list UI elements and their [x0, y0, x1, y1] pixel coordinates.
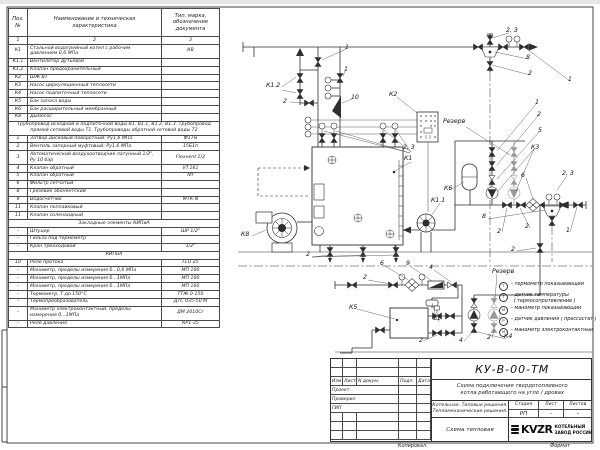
- empty-cell: [331, 359, 343, 368]
- cell-pos: 6: [9, 180, 28, 188]
- empty-cell: [399, 404, 417, 413]
- cell-type: 15Б1п: [162, 143, 220, 151]
- cell-pos: –: [9, 228, 28, 236]
- cell-name: Клапан поплавковый: [28, 204, 162, 212]
- cell-pos: К6: [9, 106, 28, 114]
- revision-table: ИзмЛистN докум.Подп.ДатаПроект.ПроверилГ…: [331, 359, 432, 441]
- revision-header-cell: Лист: [343, 377, 357, 386]
- empty-cell: [343, 413, 357, 422]
- diagram-label: К6: [444, 185, 452, 192]
- empty-cell: [399, 413, 417, 422]
- cell-type: Ф17м: [162, 135, 220, 143]
- diagram-label: 8: [526, 54, 530, 61]
- cell-name: Клапан обратный: [28, 165, 162, 173]
- diagram-label: 2, 3: [403, 144, 415, 151]
- cell-pos: 9: [9, 196, 28, 204]
- stage-grid: Стадия Лист Листов РП - -: [509, 401, 592, 418]
- cell-pos: –: [9, 291, 28, 299]
- legend-text: – датчик давления ( прессостат ): [511, 317, 597, 323]
- empty-cell: [357, 413, 399, 422]
- empty-cell: [417, 395, 431, 404]
- legend-text: – манометр показывающий: [511, 306, 582, 312]
- legend-item: Т– термометр показывающий: [499, 282, 597, 291]
- cell-pos: К4: [9, 90, 28, 98]
- table-row: –Термометр, Т до 150°СТТЖ 0-150: [9, 291, 220, 299]
- sheet-value: -: [539, 410, 564, 419]
- cell-name: Вентилятор дутьевой: [28, 58, 162, 66]
- table-row: К1.1Вентилятор дутьевой: [9, 58, 220, 66]
- empty-cell: [417, 359, 431, 368]
- logo-waves-icon: [511, 425, 519, 434]
- empty-cell: [399, 386, 417, 395]
- empty-cell: [331, 368, 343, 377]
- diagram-label: К3: [531, 144, 539, 151]
- cell-pos: 11: [9, 204, 28, 212]
- empty-cell: [343, 431, 357, 440]
- table-row: Закладные элементы КИПиА: [9, 220, 220, 228]
- water-meter: [428, 281, 444, 289]
- legend-item: Т– датчик температуры ( термосопротивлен…: [499, 293, 597, 305]
- instrument-symbol-icon: Р: [499, 317, 508, 326]
- empty-cell: [399, 431, 417, 440]
- cell-type: [162, 98, 220, 106]
- cell-pos: –: [9, 306, 28, 320]
- table-row: К5Бак запаса воды: [9, 98, 220, 106]
- diagram-label: 2: [511, 246, 515, 253]
- legend-text: – термометр показывающий: [511, 282, 584, 288]
- expansion-tank-k6: [462, 164, 477, 190]
- diagram-label: 2, 3: [506, 27, 518, 34]
- cell-type: VT.161: [162, 165, 220, 173]
- cell-type: МП 160: [162, 283, 220, 291]
- table-row: 1Затвор дисковый поворотный: Ру1,6 МПаФ1…: [9, 135, 220, 143]
- cell-type: КР1-35: [162, 320, 220, 328]
- cell-pos: 11: [9, 212, 28, 220]
- table-row: –Манометр, пределы измерения 0...1МПаМП …: [9, 283, 220, 291]
- legend-item: М– манометр электроконтактный: [499, 328, 597, 337]
- cell-pos: –: [9, 320, 28, 328]
- diagram-label: 8: [482, 213, 486, 220]
- cell-type: [162, 204, 220, 212]
- table-row: –Манометр электроконтактный, пределы изм…: [9, 306, 220, 320]
- title-block: ИзмЛистN докум.Подп.ДатаПроект.ПроверилГ…: [330, 358, 592, 442]
- cell-type: КВ: [162, 45, 220, 59]
- diagram-label: 2, 3: [562, 170, 574, 177]
- cell-pos: –: [9, 275, 28, 283]
- cell-name: Клапан обратный: [28, 172, 162, 180]
- diagram-label: 2: [419, 337, 423, 344]
- cell-type: МТК-N: [162, 196, 220, 204]
- role-cell: ГИП: [331, 404, 399, 413]
- diagram-label: 1: [344, 66, 348, 73]
- cell-pos: К5: [9, 98, 28, 106]
- cell-name: Автоматический воздухоотводчик латунный …: [28, 151, 162, 165]
- cell-name: ШЖ ВТ: [28, 74, 162, 82]
- cell-type: NY: [162, 172, 220, 180]
- cell-name: 2: [28, 37, 162, 45]
- table-row: –Гильза под термометр: [9, 235, 220, 243]
- instrument-symbol-icon: Т: [499, 293, 508, 302]
- diagram-label: 2: [283, 98, 287, 105]
- cell-type: [162, 212, 220, 220]
- scheme-description: Схема подключения твердотопливного котла…: [432, 380, 592, 401]
- cell-pos: –: [9, 283, 28, 291]
- cell-type: [162, 82, 220, 90]
- revision-header-cell: Изм: [331, 377, 343, 386]
- role-cell: Проект.: [331, 386, 399, 395]
- cell-pos: К8: [9, 113, 28, 121]
- table-row: К6Бак расширительный мембранный: [9, 106, 220, 114]
- cell-name: Кран трехходовой: [28, 243, 162, 251]
- empty-cell: [417, 368, 431, 377]
- copied-label: Копировал.: [398, 443, 428, 449]
- instrument-symbol-icon: М: [499, 328, 508, 337]
- cell-type: [162, 235, 220, 243]
- col-name-header: Наименование и техническая характеристик…: [28, 9, 162, 37]
- stage-label: Стадия: [509, 401, 539, 410]
- drawing-type: Схема тепловая: [432, 418, 508, 441]
- cell-pos: –: [9, 298, 28, 306]
- cell-name: Гильза под термометр: [28, 235, 162, 243]
- cell-type: [162, 58, 220, 66]
- sheet-label: Лист: [539, 401, 564, 410]
- pumps-k3: [486, 148, 520, 200]
- diagram-label: 10: [351, 94, 359, 101]
- diagram-label: К8: [241, 231, 249, 238]
- sheets-label: Листов: [564, 401, 592, 410]
- revision-header-cell: Подп.: [399, 377, 417, 386]
- cell-type: ДМ 2010Сг: [162, 306, 220, 320]
- cell-name: Манометр, пределы измерения 0...1МПа: [28, 283, 162, 291]
- table-row: –Манометр, пределы измерения 0...0,6 МПа…: [9, 267, 220, 275]
- cell-pos: 10: [9, 259, 28, 267]
- cell-name: Водосчетчик: [28, 196, 162, 204]
- cell-type: ДТС 035-50 М: [162, 298, 220, 306]
- cell-name: Клапан предохранительный: [28, 66, 162, 74]
- sheets-value: -: [564, 410, 592, 419]
- empty-cell: [357, 431, 399, 440]
- table-row: –ШтуцерШР 1/2": [9, 228, 220, 236]
- format-label: Формат: [550, 443, 570, 449]
- table-row: К1.2Клапан предохранительный: [9, 66, 220, 74]
- table-row: –Манометр, пределы измерения 0...1МПаМП …: [9, 275, 220, 283]
- cell-type: МП 100: [162, 275, 220, 283]
- empty-cell: [399, 395, 417, 404]
- storage-tank-k5: [390, 300, 438, 338]
- table-row: 9ВодосчетчикМТК-N: [9, 196, 220, 204]
- table-row: 2Вентиль запорный муфтовый: Ру1,6 МПа15Б…: [9, 143, 220, 151]
- cell-pos: 2: [9, 143, 28, 151]
- cell-type: FLU 25: [162, 259, 220, 267]
- cell-name: Термометр, Т до 150°С: [28, 291, 162, 299]
- spec-table-header: Поз. № Наименование и техническая характ…: [9, 9, 220, 37]
- legend-text: – датчик температуры ( термосопротивлени…: [511, 293, 576, 305]
- diagram-label: 9: [406, 260, 410, 267]
- diagram-label: 2: [306, 251, 310, 258]
- table-row: К4Насос подпиточный теплосети: [9, 90, 220, 98]
- cell-type: [162, 90, 220, 98]
- cell-name: Насос подпиточный теплосети: [28, 90, 162, 98]
- cell-type: Flexvent 1/2: [162, 151, 220, 165]
- cell-pos: К1.2: [9, 66, 28, 74]
- table-section-row: Трубопровод исходной и подпиточной воды …: [9, 121, 220, 135]
- diagram-label: К1.2: [266, 82, 280, 89]
- legend-item: М– манометр показывающий: [499, 306, 597, 315]
- legend-item: Р– датчик давления ( прессостат ): [499, 317, 597, 326]
- cell-name: Насос циркуляционный теплосети: [28, 82, 162, 90]
- table-row: –Реле давленияКР1-35: [9, 320, 220, 328]
- table-row: 11Клапан поплавковый: [9, 204, 220, 212]
- cell-name: Грязевик абонентский: [28, 188, 162, 196]
- empty-cell: [417, 422, 431, 431]
- diagram-label: 2: [537, 111, 541, 118]
- cell-pos: К2: [9, 74, 28, 82]
- empty-cell: [343, 422, 357, 431]
- table-row: К1Стальной водогрейный котел с рабочим д…: [9, 45, 220, 59]
- company-logo: KVZR КОТЕЛЬНЫЙ ЗАВОД РОССИИ: [509, 418, 592, 441]
- cell-type: ТТЖ 0-150: [162, 291, 220, 299]
- cell-pos: К1: [9, 45, 28, 59]
- empty-cell: [417, 404, 431, 413]
- empty-cell: [331, 431, 343, 440]
- drawing-sheet: Поз. № Наименование и техническая характ…: [0, 0, 600, 450]
- company-name-line2: ЗАВОД РОССИИ: [554, 430, 592, 435]
- cell-name: Затвор дисковый поворотный: Ру1,6 МПа: [28, 135, 162, 143]
- cell-name: Бак запаса воды: [28, 98, 162, 106]
- cell-name: Бак расширительный мембранный: [28, 106, 162, 114]
- cell-name: Термопреобразователь: [28, 298, 162, 306]
- revision-header-cell: Дата: [417, 377, 431, 386]
- empty-cell: [357, 359, 399, 368]
- boiler-k1: [312, 147, 403, 245]
- table-row: –Кран трехходовой1/2": [9, 243, 220, 251]
- table-row: 123: [9, 37, 220, 45]
- table-row: К8Дымосос: [9, 113, 220, 121]
- empty-cell: [331, 422, 343, 431]
- diagram-label: 5: [538, 127, 542, 134]
- cell-type: 1/2": [162, 243, 220, 251]
- cell-pos: К3: [9, 82, 28, 90]
- empty-cell: [343, 359, 357, 368]
- cell-name: Манометр, пределы измерения 0...0,6 МПа: [28, 267, 162, 275]
- diagram-label: 1: [568, 76, 572, 83]
- diagram-label: 4: [429, 264, 433, 271]
- cell-pos: 1: [9, 37, 28, 45]
- diagram-label: К1: [404, 155, 412, 162]
- cell-name: Дымосос: [28, 113, 162, 121]
- table-row: 11Клапан соленоидный: [9, 212, 220, 220]
- cell-type: [162, 66, 220, 74]
- pumps-k4: [468, 299, 500, 333]
- cell-pos: –: [9, 243, 28, 251]
- stage-value: РП: [509, 410, 539, 419]
- cell-name: Реле давления: [28, 320, 162, 328]
- cell-name: Реле протока: [28, 259, 162, 267]
- table-row: 4Клапан обратныйVT.161: [9, 165, 220, 173]
- logo-text: KVZR: [521, 423, 552, 436]
- diagram-label: Резерв: [443, 118, 465, 125]
- cell-name: Манометр, пределы измерения 0...1МПа: [28, 275, 162, 283]
- control-panel-k2: [417, 112, 438, 142]
- empty-cell: [399, 359, 417, 368]
- cell-name: Манометр электроконтактный, пределы изме…: [28, 306, 162, 320]
- cell-pos: 3: [9, 151, 28, 165]
- cell-name: Стальной водогрейный котел с рабочим дав…: [28, 45, 162, 59]
- project-name: Котельная. Типовые решения. Тепломеханич…: [432, 401, 508, 418]
- diagram-label: 2: [525, 223, 529, 230]
- empty-cell: [417, 413, 431, 422]
- draft-fan-k11: [417, 214, 435, 232]
- instrument-legend: Т– термометр показывающийТ– датчик темпе…: [499, 282, 597, 339]
- table-row: 3Автоматический воздухоотводчик латунный…: [9, 151, 220, 165]
- table-row: 10Реле протокаFLU 25: [9, 259, 220, 267]
- legend-text: – манометр электроконтактный: [511, 328, 594, 334]
- diagram-label: К5: [349, 304, 357, 311]
- cell-type: [162, 180, 220, 188]
- cell-type: 3: [162, 37, 220, 45]
- col-type-header: Тип, марка, обозначение документа: [162, 9, 220, 37]
- document-number: КУ-В-00-ТМ: [432, 359, 592, 380]
- diagram-label: 1: [535, 99, 539, 106]
- empty-cell: [417, 431, 431, 440]
- cell-name: Штуцер: [28, 228, 162, 236]
- diagram-label: 2: [487, 334, 491, 341]
- cell-type: [162, 74, 220, 82]
- empty-cell: [417, 386, 431, 395]
- cell-pos: –: [9, 235, 28, 243]
- table-row: 8Грязевик абонентский: [9, 188, 220, 196]
- diagram-label: К1.1: [431, 197, 445, 204]
- cell-pos: –: [9, 267, 28, 275]
- diagram-label: 1: [345, 44, 349, 51]
- cell-type: МП 100: [162, 267, 220, 275]
- diagram-label: Резерв: [492, 268, 514, 275]
- instrument-symbol-icon: Т: [499, 282, 508, 291]
- empty-cell: [399, 422, 417, 431]
- revision-header-cell: N докум.: [357, 377, 399, 386]
- table-row: –ТермопреобразовательДТС 035-50 М: [9, 298, 220, 306]
- diagram-label: 4: [459, 337, 463, 344]
- empty-cell: [331, 413, 343, 422]
- diagram-label: 1: [566, 227, 570, 234]
- diagram-label: 2: [528, 70, 532, 77]
- table-section-row: Закладные элементы КИПиА: [9, 220, 220, 228]
- table-row: К3Насос циркуляционный теплосети: [9, 82, 220, 90]
- cell-pos: 4: [9, 165, 28, 173]
- cell-pos: 8: [9, 188, 28, 196]
- company-name: КОТЕЛЬНЫЙ ЗАВОД РОССИИ: [554, 424, 592, 435]
- table-row: 6Фильтр сетчатый: [9, 180, 220, 188]
- diagram-label: 6: [521, 172, 525, 179]
- diagram-label: 11: [433, 315, 441, 322]
- cell-name: Фильтр сетчатый: [28, 180, 162, 188]
- diagram-label: 2: [363, 274, 367, 281]
- cell-type: ШР 1/2": [162, 228, 220, 236]
- cell-pos: 5: [9, 172, 28, 180]
- spec-table: Поз. № Наименование и техническая характ…: [8, 8, 220, 328]
- cell-name: Вентиль запорный муфтовый: Ру1,6 МПа: [28, 143, 162, 151]
- smoke-exhauster-k8: [256, 212, 297, 252]
- empty-cell: [357, 422, 399, 431]
- table-row: Трубопровод исходной и подпиточной воды …: [9, 121, 220, 135]
- cell-type: [162, 188, 220, 196]
- cell-pos: 1: [9, 135, 28, 143]
- cell-pos: К1.1: [9, 58, 28, 66]
- diagram-label: К2: [389, 91, 397, 98]
- table-row: К2ШЖ ВТ: [9, 74, 220, 82]
- cell-type: [162, 106, 220, 114]
- cell-type: [162, 113, 220, 121]
- col-pos-header: Поз. №: [9, 9, 28, 37]
- empty-cell: [399, 368, 417, 377]
- table-section-row: КИПиА: [9, 251, 220, 259]
- empty-cell: [357, 368, 399, 377]
- diagram-label: 6: [380, 260, 384, 267]
- empty-cell: [343, 368, 357, 377]
- cell-name: Клапан соленоидный: [28, 212, 162, 220]
- diagram-label: 2: [497, 228, 501, 235]
- table-row: 5Клапан обратныйNY: [9, 172, 220, 180]
- instrument-symbol-icon: М: [499, 306, 508, 315]
- role-cell: Проверил: [331, 395, 399, 404]
- table-row: КИПиА: [9, 251, 220, 259]
